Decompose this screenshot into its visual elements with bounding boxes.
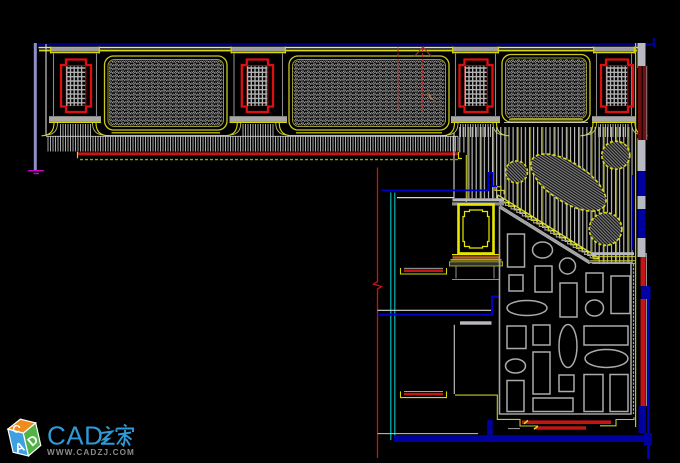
svg-text:WWW.CADZJ.COM: WWW.CADZJ.COM	[47, 448, 135, 457]
svg-text:CAD: CAD	[47, 421, 103, 451]
